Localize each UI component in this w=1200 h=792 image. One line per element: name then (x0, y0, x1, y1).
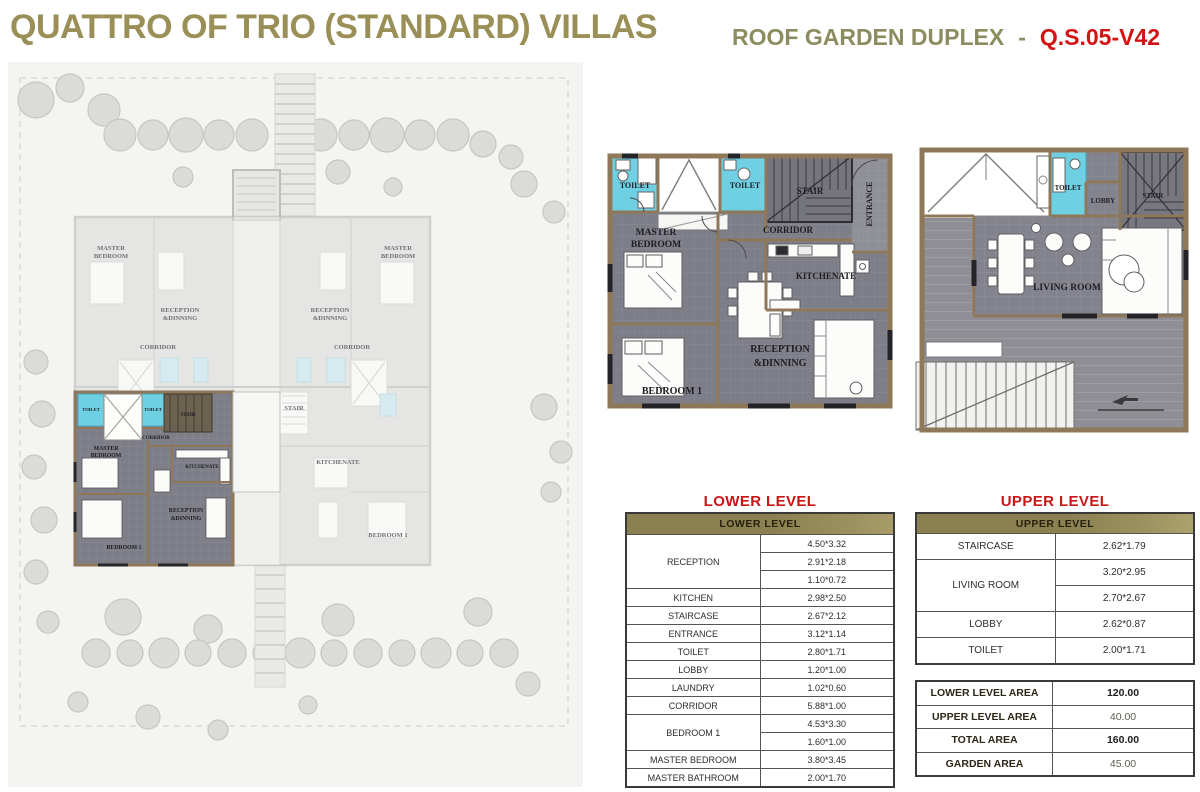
room-name-cell: MASTER BATHROOM (626, 769, 760, 788)
room-label-reception-1: RECEPTION (750, 344, 810, 355)
site-label-master-2: BEDROOM (381, 253, 415, 260)
unit-label-reception-1: RECEPTION (169, 508, 204, 514)
planter (926, 342, 1002, 357)
dimension-cell: 2.91*2.18 (760, 553, 894, 571)
room-label-master-2: BEDROOM (631, 240, 681, 250)
lower-table-title: LOWER LEVEL (625, 493, 895, 510)
upper-table-header: UPPER LEVEL (916, 513, 1194, 534)
dimension-cell: 2.70*2.67 (1055, 586, 1194, 612)
table-row: TOILET 2.00*1.71 (916, 638, 1194, 665)
site-label-reception-1: RECEPTION (161, 307, 200, 314)
unit-label-bedroom1: BEDROOM 1 (107, 545, 142, 551)
dimension-cell: 1.60*1.00 (760, 733, 894, 751)
table-row: LIVING ROOM 3.20*2.95 (916, 560, 1194, 586)
room-name-cell: STAIRCASE (916, 534, 1055, 560)
table-row: LOWER LEVEL AREA 120.00 (916, 681, 1194, 705)
dimension-cell: 3.20*2.95 (1055, 560, 1194, 586)
room-name-cell: LAUNDRY (626, 679, 760, 697)
room-name-cell: TOILET (916, 638, 1055, 665)
table-row: KITCHEN 2.98*2.50 (626, 589, 894, 607)
dimension-cell: 2.00*1.70 (760, 769, 894, 788)
dimension-cell: 2.67*2.12 (760, 607, 894, 625)
room-label-entrance: ENTRANCE (865, 182, 874, 227)
area-value-cell: 160.00 (1053, 729, 1195, 753)
lower-level-plan: TOILET TOILET STAIR ENTRANCE CORRIDOR MA… (598, 140, 900, 432)
dimension-cell: 2.98*2.50 (760, 589, 894, 607)
highlighted-unit: TOILET TOILET STAIR CORRIDOR MASTER BEDR… (75, 392, 233, 565)
table-row: CORRIDOR 5.88*1.00 (626, 697, 894, 715)
table-row: LOBBY 1.20*1.00 (626, 661, 894, 679)
area-summary-table: LOWER LEVEL AREA 120.00 UPPER LEVEL AREA… (915, 680, 1195, 777)
dimension-cell: 3.12*1.14 (760, 625, 894, 643)
site-label-reception-2: &DINNING (313, 315, 347, 322)
master-bed (624, 252, 682, 308)
site-label-master-1: MASTER (97, 245, 125, 252)
unit-label-stair: STAIR (181, 413, 196, 418)
room-label-stair: STAIR (1143, 192, 1165, 200)
site-label-master-1: MASTER (384, 245, 412, 252)
page-title: QUATTRO OF TRIO (STANDARD) VILLAS (10, 8, 657, 47)
site-label-stair: STAIR (284, 405, 304, 412)
upper-table-title: UPPER LEVEL (915, 493, 1195, 510)
site-label-master-2: BEDROOM (94, 253, 128, 260)
table-row: BEDROOM 1 4.53*3.30 (626, 715, 894, 733)
table-row: TOTAL AREA 160.00 (916, 729, 1194, 753)
room-name-cell: ENTRANCE (626, 625, 760, 643)
table-row: LOBBY 2.62*0.87 (916, 612, 1194, 638)
sofa (1102, 228, 1182, 314)
dimension-cell: 1.02*0.60 (760, 679, 894, 697)
table-row: GARDEN AREA 45.00 (916, 752, 1194, 776)
unit-label-toilet: TOILET (82, 407, 100, 412)
lower-table-header: LOWER LEVEL (626, 513, 894, 535)
lower-level-table: LOWER LEVEL RECEPTION 4.50*3.32 2.91*2.1… (625, 512, 895, 788)
site-label-corridor: CORRIDOR (334, 344, 370, 351)
table-row: LAUNDRY 1.02*0.60 (626, 679, 894, 697)
site-label-reception-2: &DINNING (163, 315, 197, 322)
unit-code: Q.S.05-V42 (1040, 24, 1160, 50)
area-label-cell: GARDEN AREA (916, 752, 1053, 776)
open-gap (658, 156, 720, 212)
room-label-kitchenate: KITCHENATE (796, 271, 856, 281)
area-label-cell: UPPER LEVEL AREA (916, 705, 1053, 729)
dining-table (988, 234, 1034, 294)
sofa (814, 320, 874, 398)
table-row: RECEPTION 4.50*3.32 (626, 535, 894, 553)
room-label-toilet-left: TOILET (620, 181, 651, 190)
room-name-cell: RECEPTION (626, 535, 760, 589)
table-row: MASTER BEDROOM 3.80*3.45 (626, 751, 894, 769)
room-label-stair: STAIR (797, 186, 824, 196)
unit-label-master-2: BEDROOM (91, 453, 122, 459)
table-row: TOILET 2.80*1.71 (626, 643, 894, 661)
unit-label-reception-2: &DINNING (171, 516, 202, 522)
room-label-master-1: MASTER (636, 228, 677, 238)
table-row: UPPER LEVEL AREA 40.00 (916, 705, 1194, 729)
unit-label-toilet: TOILET (144, 407, 162, 412)
upper-level-table: UPPER LEVEL STAIRCASE 2.62*1.79 LIVING R… (915, 512, 1195, 665)
room-label-reception-2: &DINNING (754, 358, 807, 369)
subtitle-text: ROOF GARDEN DUPLEX (732, 24, 1004, 50)
room-label-lobby: LOBBY (1091, 197, 1116, 205)
unit-label-master-1: MASTER (94, 446, 120, 452)
site-label-kitchenate: KITCHENATE (316, 459, 360, 466)
room-label-toilet: TOILET (1055, 184, 1082, 192)
upper-level-plan: TOILET LOBBY STAIR LIVING ROOM (912, 140, 1200, 442)
dimension-cell: 3.80*3.45 (760, 751, 894, 769)
floor-plan-sheet: QUATTRO OF TRIO (STANDARD) VILLAS ROOF G… (0, 0, 1200, 792)
table-row: STAIRCASE 2.67*2.12 (626, 607, 894, 625)
central-stair-tower (233, 170, 280, 220)
garden-stair (916, 362, 1074, 430)
dimension-cell: 1.10*0.72 (760, 571, 894, 589)
table-row: STAIRCASE 2.62*1.79 (916, 534, 1194, 560)
dimension-cell: 2.62*0.87 (1055, 612, 1194, 638)
garden-path (255, 565, 285, 687)
table-row: ENTRANCE 3.12*1.14 (626, 625, 894, 643)
dimension-cell: 2.80*1.71 (760, 643, 894, 661)
room-name-cell: CORRIDOR (626, 697, 760, 715)
dimension-cell: 1.20*1.00 (760, 661, 894, 679)
dimension-cell: 5.88*1.00 (760, 697, 894, 715)
room-name-cell: TOILET (626, 643, 760, 661)
room-name-cell: LIVING ROOM (916, 560, 1055, 612)
site-label-reception-1: RECEPTION (311, 307, 350, 314)
room-label-living: LIVING ROOM (1033, 283, 1101, 293)
area-label-cell: TOTAL AREA (916, 729, 1053, 753)
dimension-cell: 4.50*3.32 (760, 535, 894, 553)
room-label-bedroom1: BEDROOM 1 (642, 386, 702, 397)
room-name-cell: KITCHEN (626, 589, 760, 607)
roof-gable (922, 150, 1050, 216)
area-value-cell: 40.00 (1053, 705, 1195, 729)
area-value-cell: 120.00 (1053, 681, 1195, 705)
room-label-toilet-mid: TOILET (730, 181, 761, 190)
table-row: MASTER BATHROOM 2.00*1.70 (626, 769, 894, 788)
room-name-cell: BEDROOM 1 (626, 715, 760, 751)
subtitle: ROOF GARDEN DUPLEX-Q.S.05-V42 (732, 24, 1160, 51)
room-name-cell: LOBBY (626, 661, 760, 679)
site-plan: MASTER BEDROOM MASTER BEDROOM RECEPTION … (8, 62, 583, 787)
unit-label-corridor: CORRIDOR (142, 436, 170, 441)
stair (1120, 152, 1186, 230)
site-label-bedroom1: BEDROOM 1 (368, 532, 407, 539)
room-name-cell: MASTER BEDROOM (626, 751, 760, 769)
room-name-cell: STAIRCASE (626, 607, 760, 625)
dimension-cell: 2.62*1.79 (1055, 534, 1194, 560)
dimension-cell: 2.00*1.71 (1055, 638, 1194, 665)
area-label-cell: LOWER LEVEL AREA (916, 681, 1053, 705)
dimension-cell: 4.53*3.30 (760, 715, 894, 733)
room-label-corridor: CORRIDOR (763, 225, 814, 235)
room-name-cell: LOBBY (916, 612, 1055, 638)
core-lobby (233, 392, 280, 492)
unit-label-kitchenate: KITCHENATE (185, 465, 219, 470)
area-value-cell: 45.00 (1053, 752, 1195, 776)
subtitle-separator: - (1018, 24, 1026, 50)
site-label-corridor: CORRIDOR (140, 344, 176, 351)
